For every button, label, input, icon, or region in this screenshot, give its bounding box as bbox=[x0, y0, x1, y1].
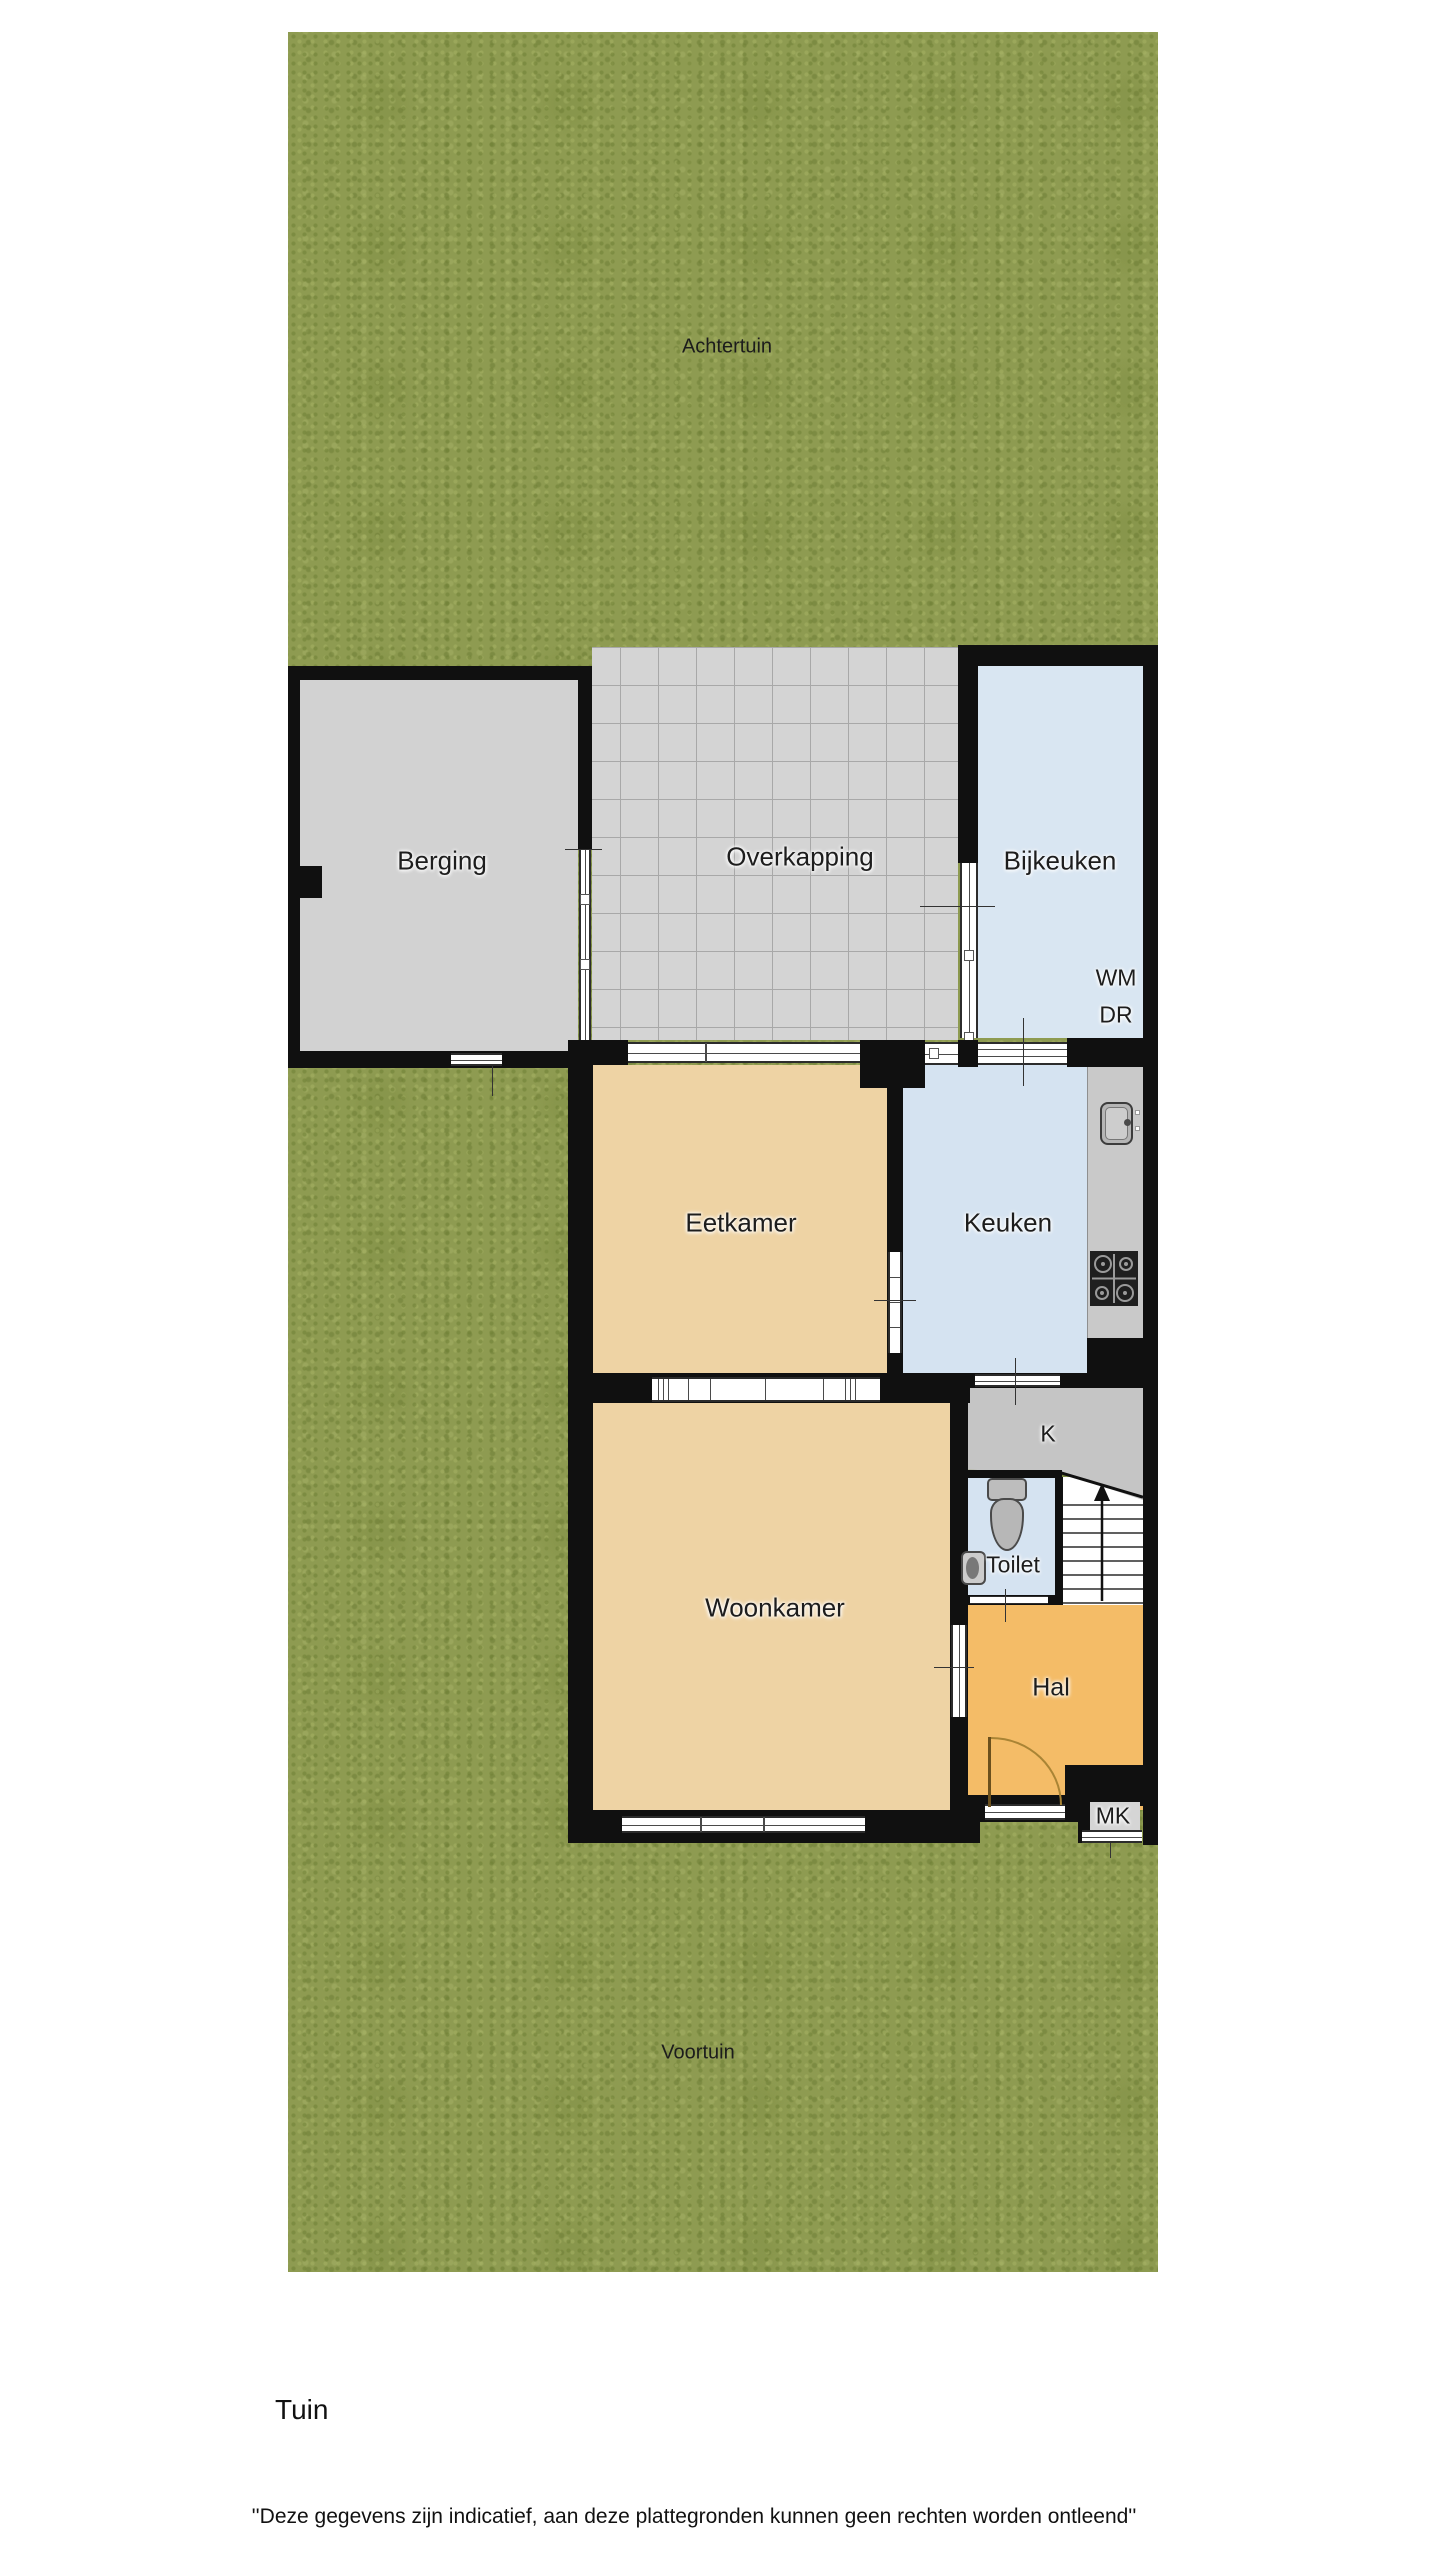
dimension-tick bbox=[920, 906, 995, 907]
room-label-bijkeuken: Bijkeuken bbox=[1004, 846, 1117, 877]
appliance-label-dr: DR bbox=[1099, 1002, 1132, 1029]
meterkast-door bbox=[1082, 1830, 1142, 1843]
window-divider bbox=[855, 1379, 856, 1400]
door-handle-icon bbox=[580, 959, 590, 970]
door-divider bbox=[890, 1302, 900, 1303]
window-divider bbox=[850, 1379, 851, 1400]
window bbox=[622, 1816, 865, 1833]
window bbox=[451, 1053, 502, 1066]
room-label-keuken: Keuken bbox=[964, 1208, 1052, 1239]
window bbox=[628, 1042, 860, 1063]
window-divider bbox=[763, 1817, 765, 1832]
wall bbox=[1143, 645, 1158, 1845]
wall bbox=[958, 645, 1158, 666]
dimension-tick bbox=[1023, 1018, 1024, 1086]
window-divider bbox=[688, 1379, 689, 1400]
page-title: Tuin bbox=[275, 2394, 328, 2426]
disclaimer-text: ''Deze gegevens zijn indicatief, aan dez… bbox=[252, 2505, 1137, 2529]
door-toilet bbox=[970, 1596, 1048, 1604]
door-woonkamer-hal bbox=[951, 1625, 967, 1717]
stairs-icon bbox=[1060, 1477, 1143, 1605]
dimension-tick bbox=[565, 849, 602, 850]
room-label-kast: K bbox=[1040, 1421, 1055, 1448]
dimension-tick bbox=[492, 1066, 493, 1096]
kitchen-counter-edge bbox=[1087, 1067, 1088, 1338]
wall bbox=[950, 1470, 1062, 1478]
room-label-toilet: Toilet bbox=[986, 1552, 1040, 1579]
wall bbox=[1055, 1470, 1062, 1605]
door-divider bbox=[890, 1277, 900, 1278]
wall bbox=[1087, 1338, 1143, 1378]
tap-knob-icon bbox=[1135, 1126, 1140, 1131]
front-door-threshold bbox=[985, 1804, 1065, 1820]
room-label-meterkast: MK bbox=[1096, 1803, 1131, 1830]
window-divider bbox=[705, 1043, 707, 1062]
window-divider bbox=[823, 1379, 824, 1400]
window-divider bbox=[765, 1379, 766, 1400]
wall bbox=[288, 1051, 592, 1068]
door-divider bbox=[890, 1327, 900, 1328]
dimension-tick bbox=[1015, 1358, 1016, 1405]
door-handle-icon bbox=[929, 1048, 939, 1059]
door-handle-icon bbox=[964, 950, 974, 961]
window-divider bbox=[710, 1379, 711, 1400]
wall-pillar bbox=[288, 866, 322, 898]
faucet-icon bbox=[1124, 1119, 1131, 1126]
wall bbox=[568, 1040, 593, 1843]
window-divider bbox=[658, 1379, 659, 1400]
wall bbox=[950, 1373, 968, 1843]
wall bbox=[1065, 1765, 1158, 1806]
stove-icon bbox=[1090, 1251, 1138, 1306]
hand-basin-icon bbox=[961, 1551, 986, 1585]
hand-basin-bowl bbox=[966, 1557, 979, 1579]
room-label-overkapping: Overkapping bbox=[726, 842, 873, 873]
appliance-label-wm: WM bbox=[1096, 965, 1137, 992]
window-divider bbox=[700, 1817, 702, 1832]
room-label-berging: Berging bbox=[397, 846, 487, 877]
wall bbox=[288, 666, 592, 680]
window-divider bbox=[845, 1379, 846, 1400]
floorplan-page: Achtertuin Voortuin Berging Overkapping … bbox=[0, 0, 1440, 2560]
dimension-tick bbox=[1005, 1589, 1006, 1622]
room-label-woonkamer: Woonkamer bbox=[705, 1593, 845, 1624]
wall bbox=[578, 666, 592, 850]
room-label-eetkamer: Eetkamer bbox=[685, 1208, 796, 1239]
tap-knob-icon bbox=[1135, 1110, 1140, 1115]
garden-back-label: Achtertuin bbox=[682, 336, 772, 359]
sliding-door-berging bbox=[579, 850, 591, 1052]
door-handle-icon bbox=[580, 894, 590, 905]
window-divider bbox=[663, 1379, 664, 1400]
window-divider bbox=[668, 1379, 669, 1400]
wall-pillar bbox=[958, 1040, 978, 1067]
dimension-tick bbox=[934, 1667, 974, 1668]
room-label-hal: Hal bbox=[1032, 1674, 1070, 1703]
wall bbox=[568, 1040, 628, 1065]
dimension-tick bbox=[874, 1300, 916, 1301]
wall bbox=[958, 645, 978, 863]
garden-front-label: Voortuin bbox=[661, 2042, 734, 2065]
dimension-tick bbox=[1110, 1843, 1111, 1858]
window bbox=[975, 1374, 1060, 1387]
